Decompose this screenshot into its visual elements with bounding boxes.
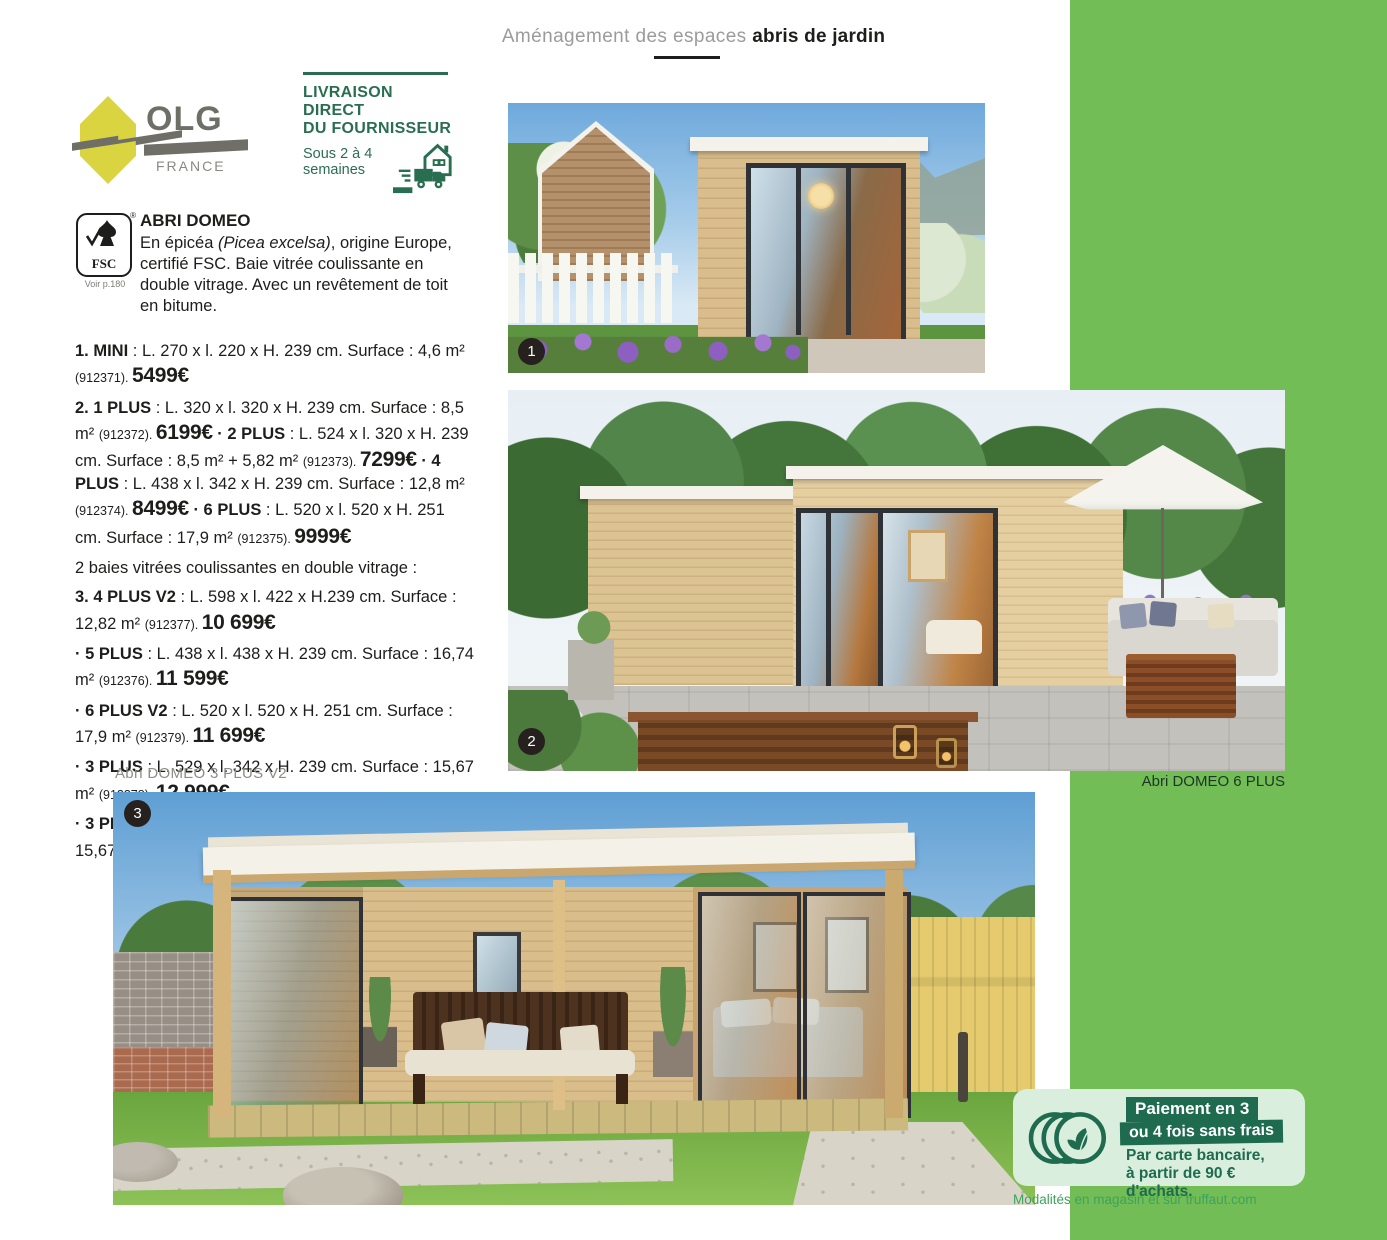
header-underline [654,56,720,59]
olg-wordmark: OLG [146,100,223,139]
delivery-rule [303,72,448,75]
catalog-page: Aménagement des espaces abris de jardin … [0,0,1387,1240]
delivery-truck-house-icon [393,134,455,196]
photo-abri-mini: 1 [508,103,985,373]
header-category: abris de jardin [752,26,885,47]
caption-photo2: Abri DOMEO 6 PLUS [985,773,1285,790]
photo1-picket-fence [508,253,678,323]
product-description: En épicéa (Picea excelsa), origine Europ… [140,233,456,317]
photo3-potted-plant [653,967,693,1077]
photo2-lantern [936,738,957,768]
listing-item: · 6 PLUS V2 : L. 520 x l. 520 x H. 251 c… [75,701,475,750]
photo3-bench-seat [405,1050,635,1076]
photo2-glass-door-left [796,508,884,696]
photo2-deck-steps [638,720,968,771]
photo3-side-glass [225,897,363,1110]
delivery-delay-line1: Sous 2 à 4 [303,146,383,163]
listing-item: 1. MINI : L. 270 x l. 220 x H. 239 cm. S… [75,341,475,390]
photo1-gravel [785,339,985,373]
delivery-delay-line2: semaines [303,162,383,179]
photo2-number-badge: 2 [518,728,545,755]
photo1-purple-flowers [508,321,808,373]
photo2-interior-sofa [926,620,982,654]
header-section: Aménagement des espaces [502,26,752,47]
product-title: ABRI DOMEO [140,211,460,231]
olg-logo: OLG FRANCE [78,94,248,190]
listing-item: 2. 1 PLUS : L. 320 x l. 320 x H. 239 cm.… [75,398,475,550]
photo-abri-3-plus-v2: 3 [113,792,1035,1205]
photo2-cushion [1119,603,1147,630]
delivery-block: LIVRAISON DIRECT DU FOURNISSEUR Sous 2 à… [303,72,453,179]
photo3-bench-legs [413,1074,628,1104]
listing-note: 2 baies vitrées coulissantes en double v… [75,558,475,579]
photo2-cushion [1149,601,1177,627]
fsc-logo: ® FSC Voir p.180 [76,213,134,289]
photo2-roof-right [786,466,1132,479]
fsc-registered-mark: ® [130,211,136,220]
payment-subheadline: ou 4 fois sans frais [1120,1120,1283,1146]
photo2-plant [566,605,622,650]
photo-abri-6-plus: 2 [508,390,1285,771]
delivery-title-line1: LIVRAISON DIRECT [303,84,453,120]
page-header: Aménagement des espaces abris de jardin [0,26,1387,48]
photo2-lantern [893,725,917,759]
photo3-post [213,870,231,1118]
photo1-cabin-roof [690,137,928,151]
fsc-box: ® FSC [76,213,132,277]
caption-photo3: Abri DOMEO 3 PLUS V2 [115,765,287,782]
photo2-door-mullion [826,508,831,686]
payment-note: Modalités en magasin et sur truffaut.com [1013,1192,1257,1207]
fsc-page-note: Voir p.180 [76,279,134,289]
photo3-light-post [958,1032,968,1102]
photo3-number-badge: 3 [124,800,151,827]
payment-headline: Paiement en 3 [1126,1097,1258,1122]
photo1-door-mullion [796,163,801,335]
photo1-door-mullion [846,163,851,335]
listing-item: · 5 PLUS : L. 438 x l. 438 x H. 239 cm. … [75,644,475,693]
payment-offer-box: Paiement en 3 ou 4 fois sans frais Par c… [1013,1089,1305,1186]
photo2-roof-left [580,486,808,499]
olg-country-label: FRANCE [156,158,226,174]
coins-leaf-icon [1027,1098,1115,1178]
listing-item: 3. 4 PLUS V2 : L. 598 x l. 422 x H.239 c… [75,587,475,636]
fsc-label: FSC [78,256,130,272]
photo2-cushion [1207,603,1235,629]
fsc-tree-icon [81,218,127,252]
photo3-potted-plant [363,977,397,1067]
photo1-number-badge: 1 [518,338,545,365]
photo2-cabin-left-wing [588,495,798,685]
olg-bar [144,139,248,155]
photo3-bedroom-glass [698,892,801,1118]
photo2-slat-table [1126,660,1236,718]
photo1-pendant-lamp [808,183,834,209]
payment-condition-line1: Par carte bancaire, [1126,1147,1305,1165]
photo2-wall-art [908,530,948,582]
photo3-post [885,870,903,1118]
